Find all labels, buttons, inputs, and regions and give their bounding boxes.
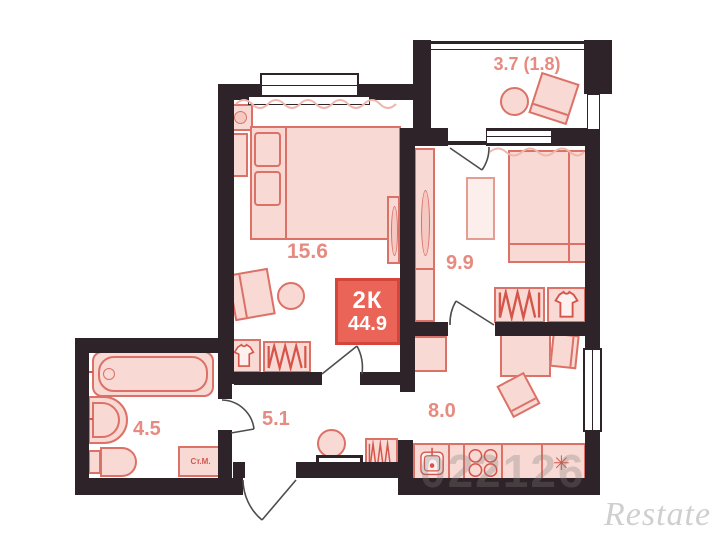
armchair-cushion-line: [238, 275, 247, 318]
lamp-icon: [234, 111, 247, 124]
floor-plan: Ст.М. ✳: [0, 0, 725, 544]
entry-door-leaf: [262, 480, 296, 520]
wall: [234, 372, 322, 385]
wardrobe-hangers: [263, 341, 311, 373]
bedroom-window: [260, 73, 359, 97]
wall: [414, 322, 448, 336]
wall: [218, 430, 232, 478]
room-label-bathroom: 4.5: [133, 418, 161, 441]
hangers-icon: [496, 289, 543, 321]
kitchen-chair: [496, 372, 540, 418]
sofa: [508, 150, 587, 263]
room-label-kitchen: 8.0: [428, 400, 456, 423]
wall: [296, 462, 400, 478]
closet-shirt: [547, 287, 586, 323]
wall: [398, 440, 413, 482]
bath-sink: [88, 396, 128, 444]
room-label-living: 9.9: [446, 252, 474, 275]
wardrobe-hangers: [494, 287, 545, 323]
watermark-digits: 022126: [420, 444, 586, 498]
wardrobe-shelf-line: [416, 268, 433, 270]
room-label-bedroom: 15.6: [287, 240, 328, 264]
kitchen-chair: [549, 333, 579, 370]
kitchen-window: [583, 348, 602, 432]
wall: [75, 478, 243, 495]
bedroom-door-leaf: [322, 346, 357, 374]
round-table: [277, 282, 305, 310]
kitchen-table: [500, 330, 551, 377]
window-mullion: [262, 85, 357, 86]
bed: [250, 126, 401, 240]
room-label-balcony: 3.7 (1.8): [462, 54, 592, 75]
room-label-hallway: 5.1: [262, 408, 290, 431]
bathroom-door-arc: [222, 400, 254, 429]
chair-line: [511, 397, 536, 411]
wall: [495, 322, 586, 336]
living-window: [486, 130, 552, 144]
pouf: [317, 429, 346, 458]
window-mullion: [592, 350, 593, 430]
chair-line: [533, 103, 568, 116]
balcony-door-arc: [482, 147, 489, 170]
wall: [414, 128, 448, 146]
washing-machine: Ст.М.: [178, 446, 223, 477]
hangers-icon: [265, 343, 309, 371]
wall: [585, 128, 600, 494]
mirror-lens: [421, 190, 430, 256]
entry-door-arc: [243, 480, 262, 520]
wall: [75, 338, 234, 353]
balcony-door-leaf: [450, 148, 482, 170]
chair-line: [569, 337, 574, 367]
wall: [233, 462, 245, 478]
rug: [466, 177, 495, 240]
toilet-bowl: [100, 447, 137, 477]
wall: [218, 353, 232, 399]
window-mullion: [487, 136, 551, 137]
wall: [400, 128, 415, 392]
bed-divider: [285, 128, 287, 238]
apartment-badge: 2К 44.9: [335, 278, 400, 345]
mirror-lens: [391, 206, 398, 256]
sofa-armrest-line: [510, 243, 585, 245]
bathtub: [92, 351, 214, 397]
bath-sink-inner: [92, 402, 120, 438]
wall: [75, 338, 89, 495]
pillow: [254, 171, 281, 206]
pillow: [254, 132, 281, 167]
drain-icon: [103, 368, 115, 380]
balcony-corner-window: [587, 94, 600, 130]
bathroom-door-leaf: [231, 429, 254, 433]
watermark-brand: Restate: [604, 496, 711, 534]
slim-wardrobe: [387, 196, 400, 264]
bedroom-window-sill: [248, 96, 370, 105]
badge-rooms: 2К: [353, 288, 383, 313]
badge-area: 44.9: [348, 314, 387, 335]
balcony-table: [500, 87, 529, 116]
living-door-leaf: [456, 301, 494, 325]
washing-machine-label: Ст.М.: [180, 448, 221, 475]
armchair: [227, 268, 276, 321]
bedroom-door-arc: [357, 346, 362, 374]
living-door-arc: [450, 301, 456, 325]
tall-wardrobe: [414, 148, 435, 322]
tshirt-icon: [549, 289, 584, 321]
